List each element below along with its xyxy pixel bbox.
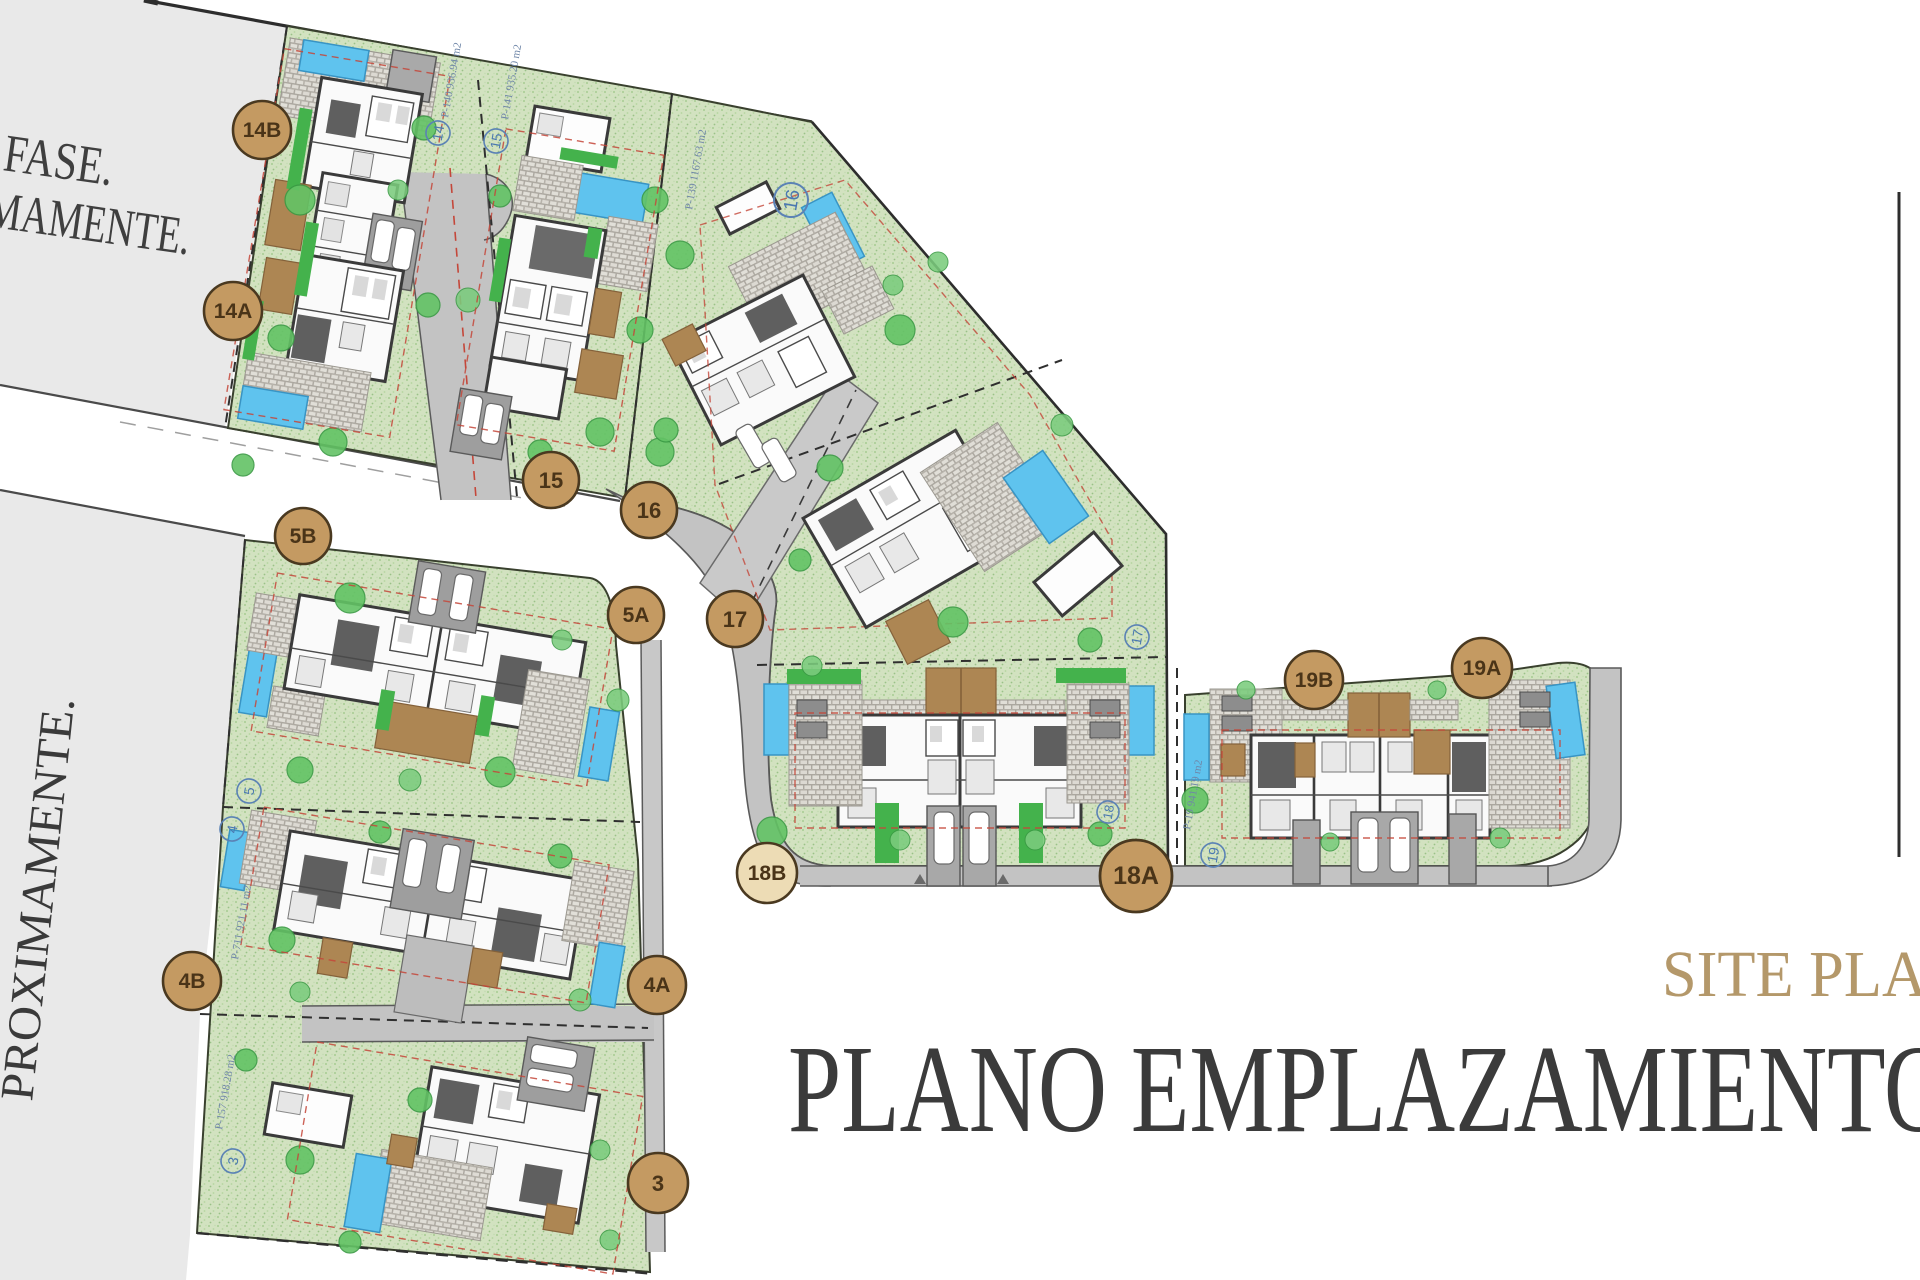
svg-text:3: 3 bbox=[652, 1171, 664, 1196]
svg-text:19B: 19B bbox=[1295, 669, 1334, 692]
svg-text:15: 15 bbox=[539, 468, 563, 493]
svg-text:18: 18 bbox=[1100, 804, 1117, 821]
svg-text:4A: 4A bbox=[644, 974, 671, 997]
svg-text:5A: 5A bbox=[623, 604, 650, 627]
svg-text:5B: 5B bbox=[290, 525, 317, 548]
svg-text:15: 15 bbox=[487, 132, 505, 150]
svg-text:4B: 4B bbox=[179, 970, 206, 993]
svg-text:17: 17 bbox=[1128, 628, 1146, 646]
svg-text:19: 19 bbox=[1204, 846, 1222, 864]
svg-text:18A: 18A bbox=[1113, 862, 1159, 890]
svg-text:14A: 14A bbox=[214, 300, 253, 323]
svg-text:17: 17 bbox=[723, 607, 747, 632]
svg-text:16: 16 bbox=[780, 188, 804, 212]
svg-text:14: 14 bbox=[429, 124, 447, 142]
svg-text:PLANO EMPLAZAMIENTO: PLANO EMPLAZAMIENTO bbox=[788, 1021, 1920, 1159]
svg-text:14B: 14B bbox=[243, 119, 282, 142]
svg-text:16: 16 bbox=[637, 498, 661, 523]
svg-text:18B: 18B bbox=[748, 862, 787, 885]
svg-text:SITE PLAN: SITE PLAN bbox=[1662, 938, 1920, 1011]
svg-text:19A: 19A bbox=[1463, 657, 1502, 680]
